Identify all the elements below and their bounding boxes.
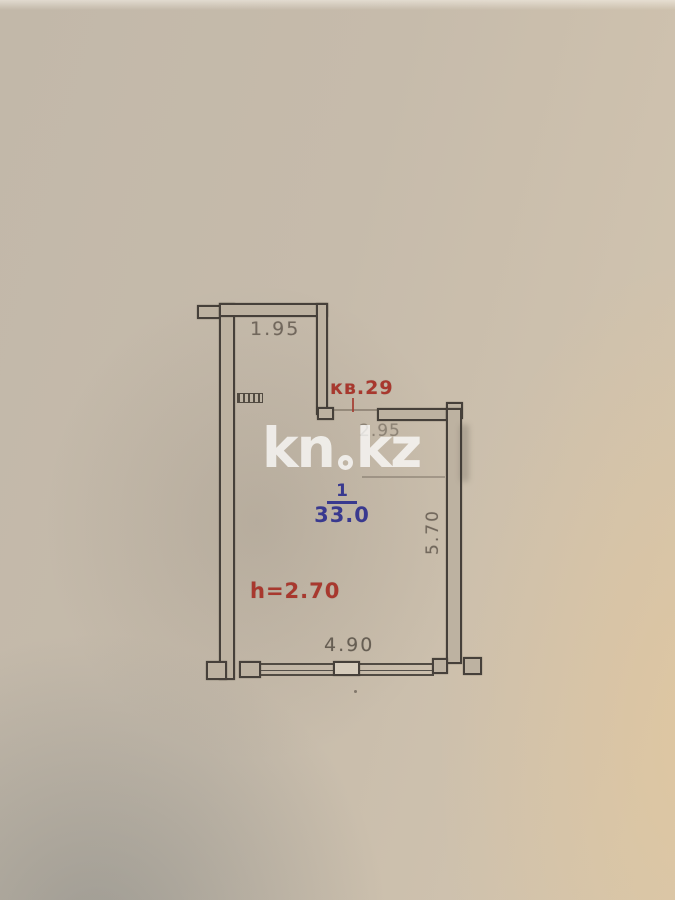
dimension-right-height: 5.70 [423, 500, 443, 564]
pier-bottom-right-inner [432, 658, 448, 674]
photo-shadow-smudge [460, 424, 469, 482]
pier-bottom-left-outer [206, 661, 227, 680]
pier-bottom-left-inner [239, 661, 261, 678]
window-center-mullion [333, 661, 360, 676]
wall-top [219, 303, 328, 317]
watermark-kn: kn [262, 420, 334, 476]
kn-kz-watermark: kn kz [262, 420, 420, 476]
wall-upper-right-vertical [316, 303, 328, 415]
ceiling-height-label: h=2.70 [250, 579, 340, 603]
watermark-kz: kz [356, 420, 421, 476]
room-label: 1 33.0 [314, 484, 370, 526]
pin-dot-icon [338, 455, 353, 470]
apartment-number-label: кв.29 [330, 377, 394, 399]
wall-left [219, 303, 235, 680]
room-number: 1 [314, 484, 370, 499]
pier-bottom-right-outer [463, 657, 482, 675]
apartment-door-tick [352, 398, 354, 412]
paper-speck [354, 690, 357, 693]
room-area: 33.0 [314, 505, 370, 526]
dimension-bottom-width: 4.90 [324, 634, 374, 656]
door-threshold-line [334, 409, 377, 411]
dimension-top-width: 1.95 [250, 318, 300, 340]
floorplan-photo: 1.95 кв.29 2.95 1 33.0 5.70 h=2.70 4.90 … [0, 0, 675, 900]
vent-shaft-hatch [237, 393, 263, 403]
